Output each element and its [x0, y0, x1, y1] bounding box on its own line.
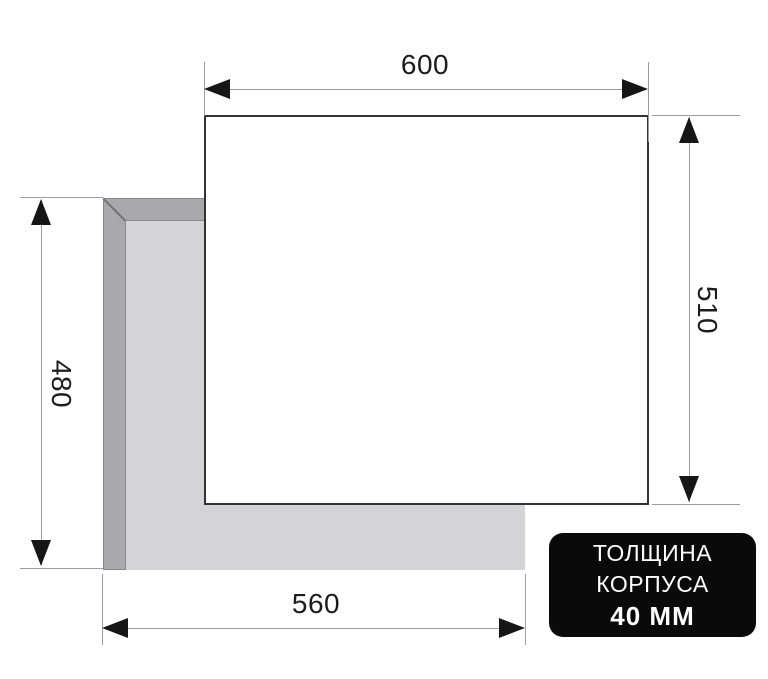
- dim-510-extension-bottom: [652, 504, 740, 505]
- dim-600-line: [206, 89, 646, 90]
- body-thickness-badge: ТОЛЩИНА КОРПУСА 40 ММ: [549, 533, 756, 637]
- dim-600-arrowhead-left-icon: [204, 79, 230, 99]
- dim-600-arrowhead-right-icon: [622, 79, 648, 99]
- dim-480-extension-bottom: [20, 568, 103, 569]
- dim-510-label: 510: [693, 250, 721, 370]
- dim-560-arrowhead-right-icon: [499, 618, 525, 638]
- badge-thickness-value: 40 ММ: [610, 600, 694, 632]
- dim-510-arrowhead-up-icon: [679, 117, 699, 143]
- dim-510-line: [689, 117, 690, 502]
- dim-600-extension-right: [648, 62, 649, 142]
- badge-line-1: ТОЛЩИНА: [593, 538, 712, 569]
- dim-510-extension-top: [652, 115, 740, 116]
- dim-560-arrowhead-left-icon: [102, 618, 128, 638]
- dim-480-arrowhead-down-icon: [31, 540, 51, 566]
- badge-line-2: КОРПУСА: [596, 569, 708, 600]
- dim-510-arrowhead-down-icon: [679, 476, 699, 502]
- dim-560-label: 560: [256, 590, 376, 618]
- dim-560-extension-right: [525, 574, 526, 645]
- dim-480-line: [41, 200, 42, 565]
- installation-diagram: 600 510 480 560 ТОЛЩИНА КОРПУСА 40 ММ: [0, 0, 768, 679]
- dim-480-arrowhead-up-icon: [31, 199, 51, 225]
- dim-600-label: 600: [365, 51, 485, 79]
- dim-560-line: [104, 628, 523, 629]
- appliance-panel: [204, 115, 649, 505]
- dim-480-extension-top: [20, 197, 103, 198]
- dim-480-label: 480: [47, 324, 75, 444]
